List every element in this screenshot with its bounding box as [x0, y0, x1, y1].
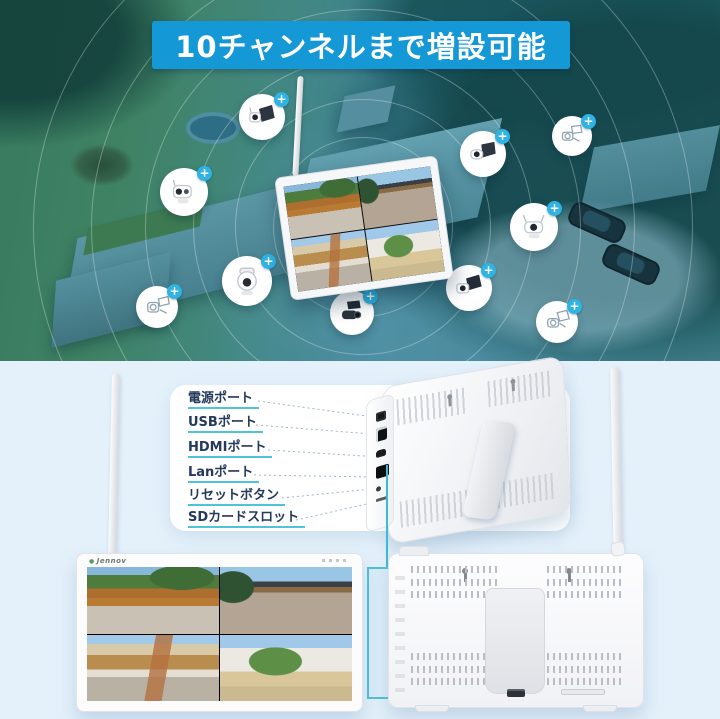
vent-grill [487, 370, 552, 407]
camera-feed-courtyard [365, 219, 445, 281]
brand-logo: Jennov [89, 557, 126, 565]
camera-badge-solar: + [239, 94, 285, 140]
camera-feed-gate [87, 635, 219, 702]
camera-feed-modern-house [220, 567, 352, 634]
camera-badge-sketch: + [536, 301, 578, 343]
vent-grill [547, 653, 625, 685]
add-camera-icon: + [567, 299, 582, 314]
camera-feed-modern-house [357, 166, 437, 228]
port-label-usb: USBポート [188, 411, 263, 433]
kickstand-folded [485, 588, 545, 694]
add-camera-icon: + [495, 129, 510, 144]
antenna-hinge [610, 541, 626, 557]
camera-badge-ptz-antenna: + [510, 203, 558, 251]
ports-section: 電源ポート USBポート HDMIポート Lanポート リセットボタン SDカー… [0, 361, 720, 719]
add-camera-icon: + [547, 201, 562, 216]
camera-feed-courtyard [220, 635, 352, 702]
add-camera-icon: + [274, 92, 289, 107]
camera-badge-solar: + [460, 131, 506, 177]
antenna-right [610, 367, 622, 557]
monitor-back-body [381, 355, 572, 545]
vent-grill [497, 472, 558, 508]
monitor-back-angled [352, 369, 570, 537]
title-banner: 10チャンネルまで増設可能 [152, 21, 570, 69]
vent-grill [400, 489, 473, 528]
monitor-preview [274, 155, 454, 301]
camera-badge-bullet: + [330, 291, 374, 335]
port-label-sdcard: SDカードスロット [188, 506, 305, 528]
port-label-lan: Lanポート [188, 461, 259, 483]
add-camera-icon: + [197, 166, 212, 181]
callout-line [386, 465, 388, 569]
camera-feed-garage [283, 177, 363, 239]
port-strip [366, 393, 394, 533]
camera-badge-ptz: + [222, 256, 272, 306]
vent-grill [396, 387, 467, 425]
add-camera-icon: + [481, 263, 496, 278]
vent-grill [411, 566, 497, 598]
side-port-strip [395, 574, 405, 692]
vent-grill [547, 566, 625, 598]
foot [415, 705, 449, 712]
antenna-hinge [399, 546, 429, 556]
aerial-scene: + + + + + + + + [0, 0, 720, 361]
monitor-screen-quadview [283, 166, 444, 292]
bottom-slot [561, 689, 605, 695]
monitor-screen-quadview [87, 567, 352, 701]
camera-feed-gate [291, 230, 371, 292]
camera-badge-duallens: + [160, 168, 208, 216]
keyhole-mount [509, 378, 517, 391]
bezel-markings [322, 559, 348, 562]
bottom-connector [507, 689, 525, 697]
reset-button [376, 486, 381, 492]
add-camera-icon: + [167, 284, 182, 299]
port-label-reset: リセットボタン [188, 484, 285, 506]
port-label-power: 電源ポート [188, 387, 259, 409]
monitor-front: Jennov [76, 553, 363, 712]
add-camera-icon: + [581, 114, 596, 129]
product-infographic: + + + + + + + + [0, 0, 720, 719]
add-camera-icon: + [261, 254, 276, 269]
camera-badge-sketch: + [552, 116, 592, 156]
camera-feed-garage [87, 567, 219, 634]
antenna-left [108, 373, 120, 559]
power-port [376, 410, 386, 422]
add-camera-icon: + [363, 289, 378, 304]
foot [583, 705, 617, 712]
monitor-rear [388, 553, 644, 708]
port-label-hdmi: HDMIポート [188, 436, 272, 458]
banner-title: 10チャンネルまで増設可能 [175, 24, 547, 66]
hdmi-port [376, 448, 386, 458]
usb-port [376, 426, 387, 442]
camera-badge-sketch: + [136, 286, 178, 328]
keyhole-mount [446, 394, 454, 407]
